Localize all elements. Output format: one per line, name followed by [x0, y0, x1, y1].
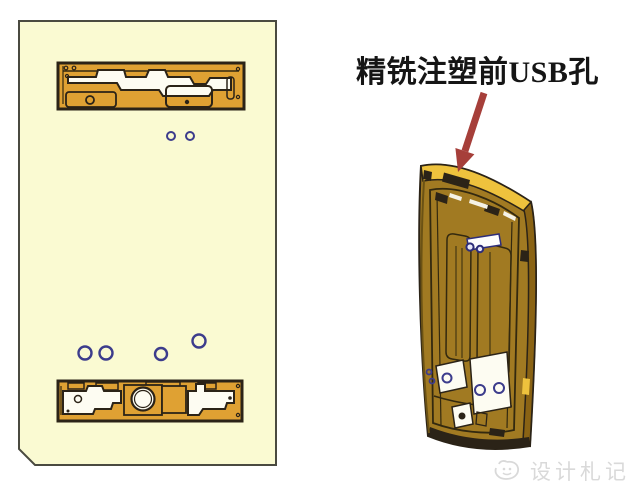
callout-arrow: [455, 93, 484, 172]
top-section-drawing: [58, 63, 244, 109]
slide-canvas: 精铣注塑前USB孔 设计札记: [0, 0, 640, 502]
watermark: 设计札记: [493, 455, 630, 487]
swirl-face-icon: [493, 458, 523, 484]
phone-frame-3d-render: [419, 164, 536, 449]
bottom-section-drawing: [58, 381, 242, 421]
annotation-label: 精铣注塑前USB孔: [356, 56, 640, 90]
watermark-text: 设计札记: [530, 456, 630, 486]
drawing-panel-2d: [19, 21, 276, 465]
